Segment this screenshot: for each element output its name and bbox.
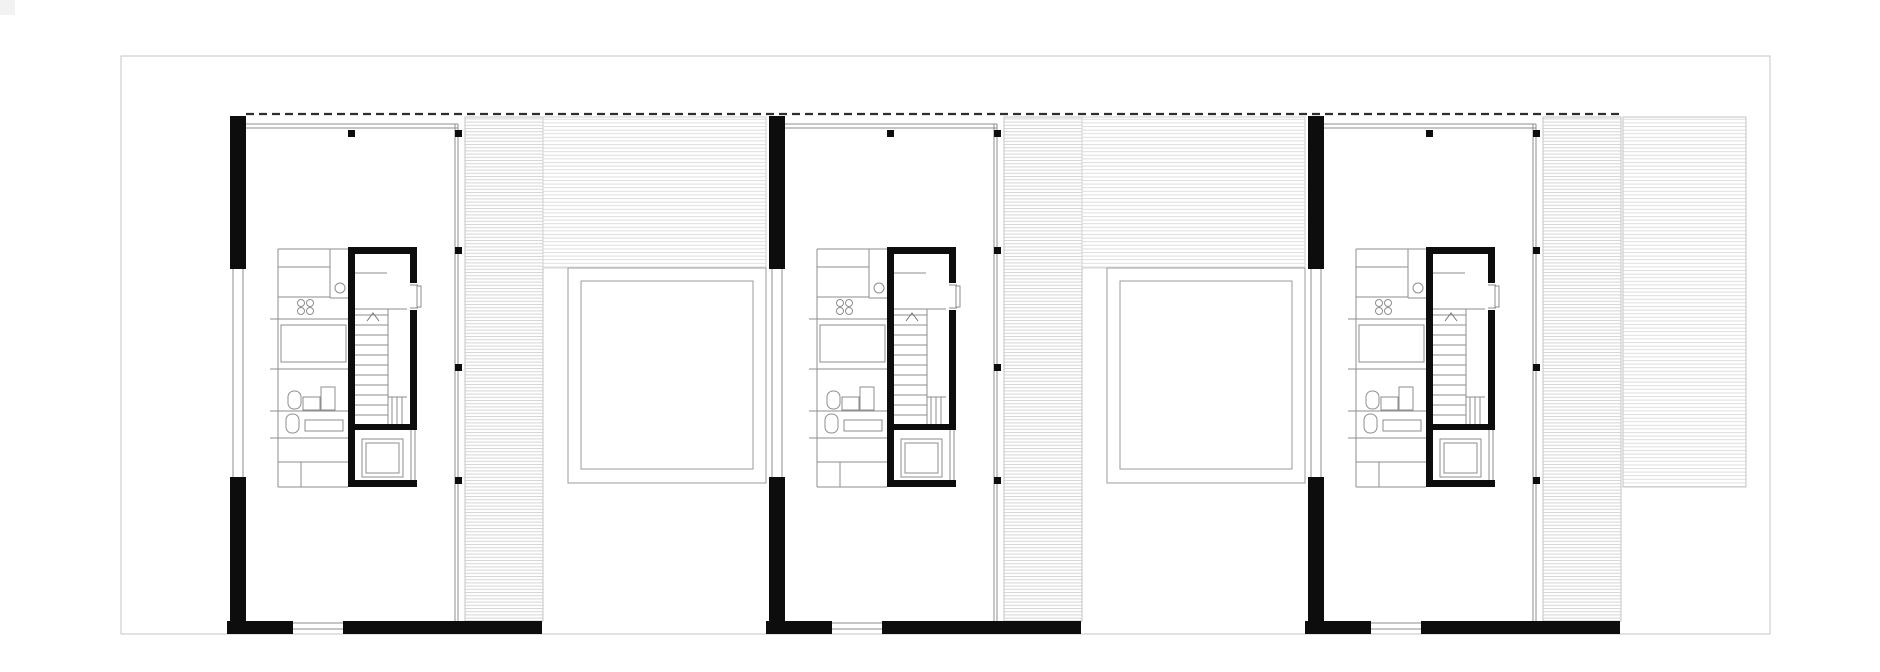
- black-wall: [887, 247, 894, 487]
- black-wall: [766, 621, 832, 634]
- black-wall: [1305, 621, 1371, 634]
- black-wall: [1426, 247, 1495, 254]
- black-wall: [1488, 310, 1495, 430]
- black-wall: [949, 252, 956, 283]
- cooktop-burner: [846, 300, 853, 307]
- structural-column: [994, 477, 1001, 484]
- structural-column: [994, 364, 1001, 371]
- structural-column: [994, 130, 1001, 137]
- bath-fixture: [1366, 391, 1379, 409]
- cooktop-burner: [1376, 308, 1383, 315]
- kitchen-sink: [335, 283, 345, 293]
- structural-column: [455, 130, 462, 137]
- black-wall: [343, 621, 542, 634]
- top-deck-band-unit-1: [543, 117, 766, 268]
- black-wall: [1488, 252, 1495, 283]
- bath-fixture: [827, 391, 840, 409]
- black-wall: [348, 480, 417, 487]
- structural-column: [348, 130, 355, 137]
- black-wall: [882, 621, 1081, 634]
- structural-column: [887, 130, 894, 137]
- fixture-rect: [281, 325, 346, 362]
- structural-column: [1533, 247, 1540, 254]
- fixture-rect: [844, 420, 882, 431]
- cooktop-burner: [298, 300, 305, 307]
- black-wall: [1433, 424, 1495, 430]
- cooktop-burner: [846, 308, 853, 315]
- bath-fixture: [288, 391, 301, 409]
- black-wall: [1426, 480, 1495, 487]
- structural-column: [1533, 477, 1540, 484]
- structural-column: [455, 477, 462, 484]
- black-wall: [230, 477, 246, 634]
- black-wall: [410, 252, 417, 283]
- kitchen-sink: [874, 283, 884, 293]
- cooktop-burner: [298, 308, 305, 315]
- cooktop-burner: [837, 300, 844, 307]
- cooktop-burner: [1376, 300, 1383, 307]
- fixture-rect: [860, 387, 874, 410]
- fixture-rect: [1399, 387, 1413, 410]
- structural-column: [1426, 130, 1433, 137]
- deck-strip-hatch-unit-2: [1004, 117, 1082, 621]
- fixture-rect: [842, 397, 859, 410]
- floor-plan-svg: [0, 0, 1880, 672]
- structural-column: [1533, 130, 1540, 137]
- page-corner-artifact: [0, 0, 15, 15]
- black-wall: [1308, 116, 1324, 269]
- deck-strip-hatch-unit-1: [465, 117, 543, 621]
- black-wall: [949, 310, 956, 430]
- black-wall: [887, 480, 956, 487]
- deck-strip-hatch-unit-3: [1543, 117, 1621, 621]
- courtyard-void-outer-1: [568, 268, 766, 483]
- black-wall: [769, 477, 785, 634]
- structural-column: [455, 364, 462, 371]
- black-wall: [410, 310, 417, 430]
- cooktop-burner: [307, 308, 314, 315]
- fixture-rect: [905, 443, 938, 473]
- kitchen-sink: [1413, 283, 1423, 293]
- black-wall: [355, 424, 417, 430]
- cooktop-burner: [307, 300, 314, 307]
- black-wall: [887, 247, 956, 254]
- cooktop-burner: [1385, 300, 1392, 307]
- fixture-rect: [1381, 397, 1398, 410]
- black-wall: [1308, 477, 1324, 634]
- bath-fixture: [825, 414, 838, 433]
- bath-fixture: [1364, 414, 1377, 433]
- structural-column: [994, 247, 1001, 254]
- black-wall: [1421, 621, 1620, 634]
- structural-column: [1533, 364, 1540, 371]
- fixture-rect: [321, 387, 335, 410]
- fixture-rect: [417, 286, 421, 307]
- black-wall: [769, 116, 785, 269]
- black-wall: [227, 621, 293, 634]
- black-wall: [348, 247, 417, 254]
- top-deck-band-unit-2: [1082, 117, 1305, 268]
- fixture-rect: [1359, 325, 1424, 362]
- black-wall: [1426, 247, 1433, 487]
- fixture-rect: [1444, 443, 1477, 473]
- fixture-rect: [303, 397, 320, 410]
- black-wall: [894, 424, 956, 430]
- fixture-rect: [956, 286, 960, 307]
- fixture-rect: [1383, 420, 1421, 431]
- fixture-rect: [1495, 286, 1499, 307]
- structural-column: [455, 247, 462, 254]
- cooktop-burner: [1385, 308, 1392, 315]
- courtyard-void-outer-2: [1107, 268, 1305, 483]
- bath-fixture: [286, 414, 299, 433]
- fixture-rect: [366, 443, 399, 473]
- cooktop-burner: [837, 308, 844, 315]
- deck-extension-unit-3: [1623, 117, 1746, 487]
- fixture-rect: [305, 420, 343, 431]
- black-wall: [348, 247, 355, 487]
- fixture-rect: [820, 325, 885, 362]
- architectural-drawing-page: [0, 0, 1880, 672]
- sheet-layer: [0, 0, 1770, 634]
- black-wall: [230, 116, 246, 269]
